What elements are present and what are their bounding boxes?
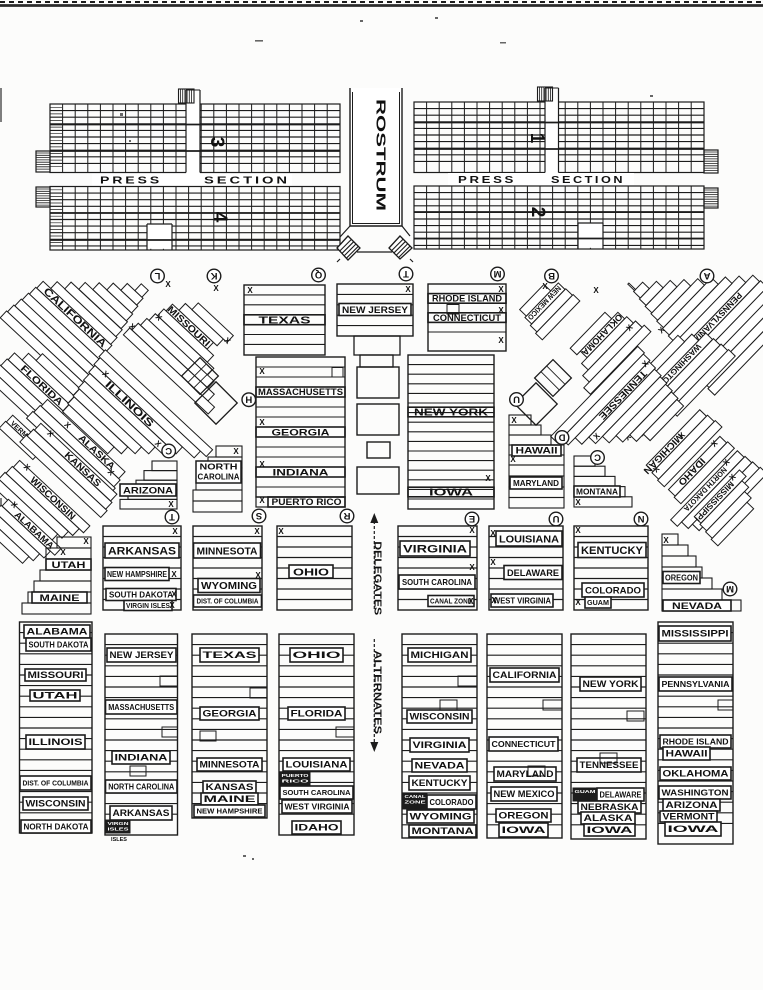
svg-text:T: T [169,511,175,522]
svg-text:NEW YORK: NEW YORK [414,408,489,419]
svg-text:X: X [485,474,491,483]
svg-text:TEXAS: TEXAS [259,315,312,326]
svg-text:MISSISSIPPI: MISSISSIPPI [662,629,729,639]
svg-text:NORTH DAKOTA: NORTH DAKOTA [24,822,89,831]
svg-text:IOWA: IOWA [668,824,720,834]
svg-text:ALASKA: ALASKA [584,813,634,823]
svg-text:VIRGINIA: VIRGINIA [413,740,468,750]
svg-text:1: 1 [526,133,547,144]
svg-text:R: R [343,510,350,521]
svg-text:CANAL ZONE: CANAL ZONE [430,597,472,606]
svg-text:NEW JERSEY: NEW JERSEY [342,305,409,316]
svg-text:CALIFORNIA: CALIFORNIA [493,670,558,680]
svg-text:PRESS: PRESS [100,176,162,187]
svg-text:COLORADO: COLORADO [430,798,474,807]
svg-text:INDIANA: INDIANA [273,467,329,478]
svg-text:NEBRASKA: NEBRASKA [581,802,640,812]
svg-text:X: X [593,286,599,295]
svg-text:MONTANA: MONTANA [412,826,475,836]
svg-text:GUAM: GUAM [575,789,596,794]
svg-text:X: X [233,447,239,456]
svg-text:NEVADA: NEVADA [672,601,722,612]
svg-text:SOUTH CAROLINA: SOUTH CAROLINA [283,788,352,797]
svg-text:MISSOURI: MISSOURI [28,670,84,680]
svg-text:WYOMING: WYOMING [201,581,257,592]
svg-text:CANAL: CANAL [405,794,426,799]
svg-text:VIRGN: VIRGN [108,821,129,826]
svg-text:LOUISIANA: LOUISIANA [286,760,349,770]
svg-text:ALABAMA: ALABAMA [27,627,89,637]
svg-text:NEW MEXICO: NEW MEXICO [494,789,555,799]
svg-text:NORTH CAROLINA: NORTH CAROLINA [108,782,174,791]
svg-text:X: X [663,536,669,545]
svg-text:UTAH: UTAH [52,560,86,571]
svg-text:NEVADA: NEVADA [415,761,466,771]
svg-text:NORTH: NORTH [200,462,238,472]
svg-text:X: X [259,460,265,469]
svg-text:2: 2 [527,207,548,218]
svg-text:X: X [469,526,475,535]
svg-text:X: X [213,284,219,293]
svg-text:NEW HAMPSHIRE: NEW HAMPSHIRE [107,570,168,579]
svg-text:H: H [245,394,252,405]
svg-text:3: 3 [206,137,227,148]
svg-text:MAINE: MAINE [40,593,80,604]
svg-text:GEORGIA: GEORGIA [272,427,330,438]
svg-text:X: X [171,570,177,579]
svg-text:X: X [169,601,175,610]
svg-text:ARIZONA: ARIZONA [123,485,173,496]
svg-text:X: X [542,282,548,291]
svg-text:X: X [405,285,411,294]
svg-text:DIST. OF COLUMBIA: DIST. OF COLUMBIA [23,779,90,788]
svg-text:N: N [637,513,644,524]
svg-text:ARKANSAS: ARKANSAS [113,808,170,818]
svg-text:ARKANSAS: ARKANSAS [108,546,176,558]
svg-text:WASHINGTON: WASHINGTON [662,788,729,797]
svg-text:DELEGATES: DELEGATES [371,541,383,615]
svg-text:X: X [575,526,581,535]
svg-text:C: C [165,445,172,456]
svg-text:COLORADO: COLORADO [585,585,641,596]
svg-text:NEW JERSEY: NEW JERSEY [110,650,174,660]
svg-text:X: X [511,416,517,425]
svg-text:B: B [548,270,555,281]
svg-text:OHIO: OHIO [293,566,329,578]
svg-text:INDIANA: INDIANA [115,753,169,763]
svg-text:M: M [493,268,501,279]
svg-text:TENNESSEE: TENNESSEE [580,760,639,770]
svg-text:Q: Q [315,269,322,280]
svg-text:CONNECTICUT: CONNECTICUT [492,740,556,749]
svg-text:X: X [498,285,504,294]
svg-text:X: X [255,571,261,580]
svg-text:K: K [210,270,217,281]
svg-text:GUAM: GUAM [587,598,609,607]
svg-text:X: X [491,596,497,605]
svg-text:VIRGINIA: VIRGINIA [403,544,467,556]
svg-text:MINNESOTA: MINNESOTA [197,545,258,557]
svg-text:HAWAII: HAWAII [666,749,708,759]
svg-text:X: X [498,336,504,345]
svg-text:SOUTH DAKOTA: SOUTH DAKOTA [109,590,173,600]
svg-text:ALTERNATES: ALTERNATES [371,650,383,734]
svg-text:RHODE ISLAND: RHODE ISLAND [432,294,502,304]
svg-text:ISLES: ISLES [111,837,127,843]
svg-text:OKLAHOMA: OKLAHOMA [663,769,730,779]
svg-text:E: E [469,513,475,524]
svg-text:X: X [468,597,474,606]
svg-text:A: A [703,270,710,281]
svg-text:NEW HAMPSHIRE: NEW HAMPSHIRE [197,807,263,816]
svg-text:IDAHO: IDAHO [295,823,339,833]
svg-text:DIST. OF COLUMBIA: DIST. OF COLUMBIA [197,597,259,606]
svg-text:UTAH: UTAH [33,691,78,701]
svg-text:CONNECTICUT: CONNECTICUT [433,313,502,323]
svg-text:IOWA: IOWA [587,825,634,835]
svg-text:X: X [247,286,253,295]
svg-text:X: X [490,558,496,567]
svg-text:TEXAS: TEXAS [203,650,257,660]
svg-text:L: L [154,270,160,281]
svg-text:SOUTH CAROLINA: SOUTH CAROLINA [402,577,472,587]
svg-text:IOWA: IOWA [502,825,547,835]
svg-text:D: D [558,431,565,442]
svg-text:WYOMING: WYOMING [410,812,472,822]
svg-text:WEST VIRGINIA: WEST VIRGINIA [285,802,350,811]
svg-text:SECTION: SECTION [204,176,290,187]
svg-text:WISCONSIN: WISCONSIN [26,799,86,809]
svg-text:X: X [469,563,475,572]
svg-text:CAROLINA: CAROLINA [198,472,240,482]
svg-text:SOUTH DAKOTA: SOUTH DAKOTA [29,640,89,649]
svg-text:ISLES: ISLES [108,827,129,832]
svg-text:MARYLAND: MARYLAND [513,478,559,488]
svg-text:WISCONSIN: WISCONSIN [410,712,470,722]
svg-text:X: X [575,598,581,607]
svg-text:ROSTRUM: ROSTRUM [374,99,389,211]
svg-text:X: X [259,496,265,505]
svg-text:OREGON: OREGON [499,811,549,821]
svg-text:DELAWARE: DELAWARE [600,790,643,799]
svg-text:X: X [165,280,171,289]
svg-text:PRESS: PRESS [458,175,516,186]
svg-text:LOUISIANA: LOUISIANA [499,533,559,545]
svg-text:X: X [575,498,581,507]
svg-text:KENTUCKY: KENTUCKY [581,545,644,557]
svg-text:4: 4 [209,212,230,223]
svg-text:X: X [259,418,265,427]
svg-text:X: X [254,527,260,536]
svg-text:X: X [168,500,174,509]
svg-text:DELAWARE: DELAWARE [507,568,559,579]
svg-text:ZONE: ZONE [405,800,426,805]
svg-text:X: X [510,455,516,464]
svg-text:X: X [259,367,265,376]
svg-text:X: X [171,590,177,599]
svg-text:HAWAII: HAWAII [516,446,558,456]
svg-text:S: S [256,510,262,521]
svg-text:PUERTO: PUERTO [282,773,310,778]
svg-text:FLORIDA: FLORIDA [291,709,344,719]
svg-text:M: M [726,583,734,594]
svg-text:OHIO: OHIO [293,650,341,660]
svg-text:PUERTO RICO: PUERTO RICO [272,497,342,507]
svg-text:T: T [403,268,409,279]
svg-text:X: X [83,537,89,546]
svg-text:MASSACHUSETTS: MASSACHUSETTS [258,387,343,397]
svg-text:X: X [278,527,284,536]
svg-text:NEW YORK: NEW YORK [583,679,640,689]
svg-text:MAINE: MAINE [204,794,256,804]
svg-text:GEORGIA: GEORGIA [203,709,258,719]
svg-text:X: X [60,548,66,557]
svg-text:X: X [172,527,178,536]
svg-text:X: X [498,306,504,315]
svg-text:U: U [552,513,559,524]
svg-text:ILLINOIS: ILLINOIS [29,737,83,747]
svg-text:MINNESOTA: MINNESOTA [200,760,261,770]
svg-text:MICHIGAN: MICHIGAN [411,650,469,660]
svg-text:PENNSYLVANIA: PENNSYLVANIA [662,680,730,689]
svg-text:IOWA: IOWA [429,488,473,499]
svg-text:WEST VIRGINIA: WEST VIRGINIA [493,596,551,606]
svg-text:RHODE ISLAND: RHODE ISLAND [663,737,729,746]
svg-text:OREGON: OREGON [665,573,698,582]
svg-text:VERMONT: VERMONT [663,812,716,822]
svg-text:ARIZONA: ARIZONA [666,800,719,810]
svg-text:VIRGIN ISLES: VIRGIN ISLES [126,601,170,610]
svg-text:X: X [490,529,496,538]
svg-text:SECTION: SECTION [551,175,625,186]
svg-text:RICO: RICO [282,779,310,784]
svg-text:C: C [594,451,601,462]
svg-text:KANSAS: KANSAS [206,782,254,792]
svg-text:MONTANA: MONTANA [576,487,618,497]
svg-text:MASSACHUSETTS: MASSACHUSETTS [108,703,174,712]
svg-text:KENTUCKY: KENTUCKY [412,778,468,788]
svg-text:U: U [513,393,520,404]
